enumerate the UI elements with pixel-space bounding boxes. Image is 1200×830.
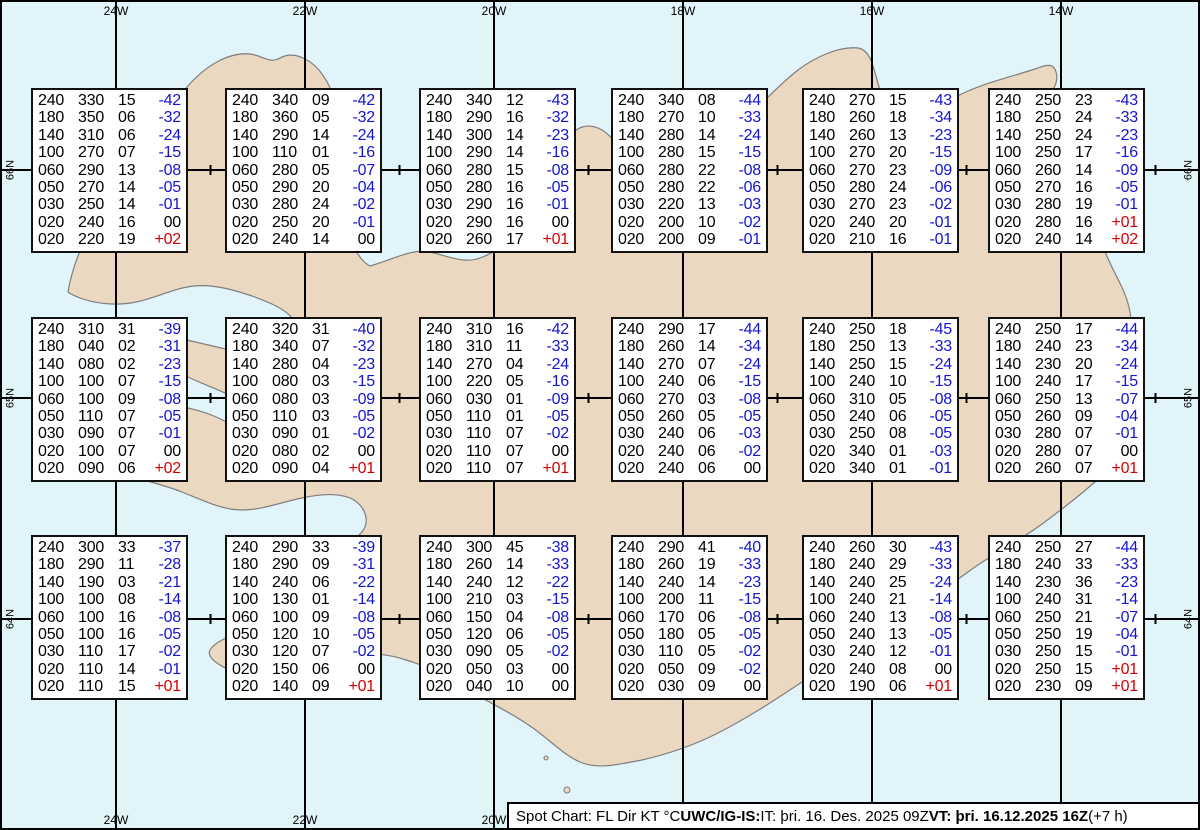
dir-cell: 100	[78, 443, 108, 460]
temp-cell: -08	[537, 609, 569, 626]
temp-cell: -08	[537, 162, 569, 179]
spot-row: 02011007+01	[426, 460, 569, 477]
fl-cell: 140	[426, 127, 456, 144]
temp-cell: +01	[537, 460, 569, 477]
dir-cell: 250	[1035, 109, 1065, 126]
fl-cell: 240	[38, 92, 68, 109]
fl-cell: 030	[426, 643, 456, 660]
fl-cell: 180	[232, 338, 262, 355]
speed-cell: 10	[506, 678, 527, 695]
fl-cell: 140	[618, 127, 648, 144]
speed-cell: 13	[698, 196, 719, 213]
speed-cell: 16	[118, 626, 139, 643]
dir-cell: 270	[1035, 179, 1065, 196]
temp-cell: 00	[537, 661, 569, 678]
spot-row: 24027015-43	[809, 92, 952, 109]
fl-cell: 240	[995, 92, 1025, 109]
fl-cell: 140	[809, 356, 839, 373]
dir-cell: 310	[849, 391, 879, 408]
speed-cell: 36	[1075, 574, 1096, 591]
lon-label-top-14W: 14W	[1049, 5, 1074, 17]
speed-cell: 06	[698, 609, 719, 626]
temp-cell: 00	[729, 678, 761, 695]
dir-cell: 300	[466, 539, 496, 556]
fl-cell: 180	[618, 109, 648, 126]
fl-cell: 240	[38, 539, 68, 556]
temp-cell: -23	[1106, 574, 1138, 591]
dir-cell: 210	[849, 231, 879, 248]
speed-cell: 07	[312, 338, 333, 355]
speed-cell: 14	[1075, 231, 1096, 248]
spot-row: 05011001-05	[426, 408, 569, 425]
speed-cell: 10	[889, 373, 910, 390]
fl-cell: 100	[809, 591, 839, 608]
temp-cell: -01	[1106, 196, 1138, 213]
spot-row: 10022005-16	[426, 373, 569, 390]
dir-cell: 030	[466, 391, 496, 408]
fl-cell: 020	[38, 460, 68, 477]
spot-row: 03009001-02	[232, 425, 375, 442]
speed-cell: 23	[1075, 92, 1096, 109]
temp-cell: -08	[729, 162, 761, 179]
dir-cell: 110	[466, 443, 496, 460]
spot-row: 10028015-15	[618, 144, 761, 161]
temp-cell: -15	[920, 373, 952, 390]
speed-cell: 14	[1075, 162, 1096, 179]
dir-cell: 330	[78, 92, 108, 109]
dir-cell: 250	[1035, 626, 1065, 643]
spot-row: 10020011-15	[618, 591, 761, 608]
dir-cell: 250	[1035, 92, 1065, 109]
dir-cell: 150	[272, 661, 302, 678]
spot-row: 18029009-31	[232, 556, 375, 573]
spot-row: 02025015+01	[995, 661, 1138, 678]
speed-cell: 15	[118, 678, 139, 695]
lon-label-top-22W: 22W	[293, 5, 318, 17]
fl-cell: 020	[618, 678, 648, 695]
spot-row: 03009005-02	[426, 643, 569, 660]
temp-cell: -15	[920, 144, 952, 161]
dir-cell: 340	[658, 92, 688, 109]
fl-cell: 240	[38, 321, 68, 338]
fl-cell: 020	[809, 661, 839, 678]
speed-cell: 02	[118, 338, 139, 355]
spot-row: 05010016-05	[38, 626, 181, 643]
spot-chart-map: 24W24W22W22W20W20W18W18W16W16W14W14W66N6…	[0, 0, 1200, 830]
speed-cell: 18	[889, 321, 910, 338]
spot-row: 02026017+01	[426, 231, 569, 248]
dir-cell: 290	[466, 214, 496, 231]
dir-cell: 270	[78, 144, 108, 161]
dir-cell: 290	[272, 179, 302, 196]
dir-cell: 290	[272, 127, 302, 144]
temp-cell: -14	[343, 591, 375, 608]
speed-cell: 09	[698, 231, 719, 248]
temp-cell: -02	[343, 196, 375, 213]
temp-cell: -42	[537, 321, 569, 338]
temp-cell: -32	[343, 109, 375, 126]
speed-cell: 06	[312, 574, 333, 591]
speed-cell: 01	[506, 408, 527, 425]
spot-row: 02024020-01	[809, 214, 952, 231]
fl-cell: 020	[618, 443, 648, 460]
speed-cell: 24	[1075, 127, 1096, 144]
temp-cell: -05	[729, 408, 761, 425]
dir-cell: 310	[78, 321, 108, 338]
dir-cell: 200	[658, 231, 688, 248]
dir-cell: 270	[849, 144, 879, 161]
temp-cell: -24	[537, 356, 569, 373]
fl-cell: 060	[38, 162, 68, 179]
spot-row: 02034001-03	[809, 443, 952, 460]
spot-row: 14027004-24	[426, 356, 569, 373]
dir-cell: 280	[1035, 196, 1065, 213]
speed-cell: 07	[506, 425, 527, 442]
speed-cell: 07	[506, 460, 527, 477]
dir-cell: 340	[849, 460, 879, 477]
spot-row: 02009004+01	[232, 460, 375, 477]
dir-cell: 100	[78, 626, 108, 643]
dir-cell: 100	[78, 391, 108, 408]
temp-cell: -31	[149, 338, 181, 355]
spot-row: 24031031-39	[38, 321, 181, 338]
dir-cell: 280	[272, 356, 302, 373]
dir-cell: 280	[466, 179, 496, 196]
spot-row: 10011001-16	[232, 144, 375, 161]
temp-cell: -22	[343, 574, 375, 591]
spot-row: 02026007+01	[995, 460, 1138, 477]
fl-cell: 030	[38, 425, 68, 442]
lon-label-top-20W: 20W	[482, 5, 507, 17]
lat-label-left-66N: 66N	[6, 160, 17, 180]
fl-cell: 020	[232, 460, 262, 477]
spot-box-12: 24025017-4418024023-3414023020-241002401…	[988, 317, 1145, 482]
fl-cell: 180	[38, 556, 68, 573]
fl-cell: 180	[426, 556, 456, 573]
temp-cell: -24	[343, 127, 375, 144]
temp-cell: +02	[149, 460, 181, 477]
spot-row: 03027023-02	[809, 196, 952, 213]
fl-cell: 050	[426, 408, 456, 425]
fl-cell: 100	[232, 591, 262, 608]
dir-cell: 240	[272, 574, 302, 591]
temp-cell: -14	[1106, 591, 1138, 608]
temp-cell: -23	[920, 127, 952, 144]
lon-label-top-24W: 24W	[104, 5, 129, 17]
speed-cell: 41	[698, 539, 719, 556]
temp-cell: 00	[343, 231, 375, 248]
fl-cell: 050	[995, 626, 1025, 643]
dir-cell: 210	[466, 591, 496, 608]
speed-cell: 14	[312, 127, 333, 144]
speed-cell: 08	[118, 591, 139, 608]
fl-cell: 140	[38, 574, 68, 591]
temp-cell: -16	[343, 144, 375, 161]
dir-cell: 350	[78, 109, 108, 126]
fl-cell: 060	[232, 391, 262, 408]
dir-cell: 340	[849, 443, 879, 460]
speed-cell: 19	[698, 556, 719, 573]
spot-box-5: 24027015-4318026018-3414026013-231002702…	[802, 88, 959, 253]
speed-cell: 11	[506, 338, 527, 355]
dir-cell: 050	[658, 661, 688, 678]
speed-cell: 01	[889, 460, 910, 477]
lon-label-bottom-20W: 20W	[482, 814, 507, 826]
spot-row: 0202400800	[809, 661, 952, 678]
fl-cell: 050	[809, 626, 839, 643]
fl-cell: 180	[995, 109, 1025, 126]
speed-cell: 20	[312, 214, 333, 231]
fl-cell: 020	[995, 443, 1025, 460]
fl-cell: 180	[995, 338, 1025, 355]
temp-cell: -43	[537, 92, 569, 109]
dir-cell: 300	[466, 127, 496, 144]
spot-row: 06027023-09	[809, 162, 952, 179]
speed-cell: 05	[312, 162, 333, 179]
temp-cell: 00	[537, 678, 569, 695]
temp-cell: -03	[729, 196, 761, 213]
speed-cell: 14	[698, 338, 719, 355]
temp-cell: +01	[537, 231, 569, 248]
temp-cell: -01	[920, 643, 952, 660]
speed-cell: 19	[1075, 626, 1096, 643]
dir-cell: 340	[466, 92, 496, 109]
speed-cell: 20	[889, 214, 910, 231]
spot-row: 14026013-23	[809, 127, 952, 144]
spot-row: 02024006-02	[618, 443, 761, 460]
dir-cell: 260	[1035, 162, 1065, 179]
speed-cell: 08	[698, 92, 719, 109]
fl-cell: 060	[809, 391, 839, 408]
dir-cell: 260	[849, 109, 879, 126]
fl-cell: 020	[426, 231, 456, 248]
speed-cell: 06	[118, 109, 139, 126]
dir-cell: 290	[272, 556, 302, 573]
fl-cell: 240	[426, 92, 456, 109]
dir-cell: 030	[658, 678, 688, 695]
speed-cell: 09	[698, 678, 719, 695]
dir-cell: 240	[658, 460, 688, 477]
spot-row: 02005009-02	[618, 661, 761, 678]
dir-cell: 110	[466, 425, 496, 442]
fl-cell: 020	[809, 678, 839, 695]
spot-row: 02028016+01	[995, 214, 1138, 231]
fl-cell: 180	[232, 556, 262, 573]
spot-row: 18024029-33	[809, 556, 952, 573]
dir-cell: 240	[1035, 231, 1065, 248]
fl-cell: 020	[618, 214, 648, 231]
spot-box-2: 24034009-4218036005-3214029014-241001100…	[225, 88, 382, 253]
spot-row: 18036005-32	[232, 109, 375, 126]
fl-cell: 100	[618, 373, 648, 390]
temp-cell: -08	[149, 609, 181, 626]
dir-cell: 240	[849, 556, 879, 573]
speed-cell: 14	[506, 144, 527, 161]
temp-cell: +01	[1106, 678, 1138, 695]
speed-cell: 11	[118, 556, 139, 573]
fl-cell: 060	[426, 162, 456, 179]
fl-cell: 180	[809, 556, 839, 573]
speed-cell: 23	[889, 196, 910, 213]
dir-cell: 120	[272, 643, 302, 660]
dir-cell: 260	[849, 539, 879, 556]
fl-cell: 020	[426, 443, 456, 460]
dir-cell: 110	[466, 408, 496, 425]
spot-row: 03024012-01	[809, 643, 952, 660]
temp-cell: -01	[920, 231, 952, 248]
spot-row: 05011003-05	[232, 408, 375, 425]
dir-cell: 230	[1035, 356, 1065, 373]
fl-cell: 100	[618, 591, 648, 608]
fl-cell: 050	[809, 179, 839, 196]
fl-cell: 140	[38, 127, 68, 144]
fl-cell: 020	[995, 678, 1025, 695]
fl-cell: 030	[232, 643, 262, 660]
dir-cell: 270	[849, 162, 879, 179]
fl-cell: 140	[618, 574, 648, 591]
footer-segment-bold: VT: þri. 16.12.2025 16Z	[929, 808, 1088, 825]
dir-cell: 240	[658, 574, 688, 591]
spot-row: 24030033-37	[38, 539, 181, 556]
temp-cell: 00	[343, 443, 375, 460]
footer-segment: Spot Chart: FL Dir KT °C	[516, 808, 680, 825]
temp-cell: 00	[537, 214, 569, 231]
dir-cell: 110	[78, 678, 108, 695]
fl-cell: 240	[426, 321, 456, 338]
dir-cell: 260	[1035, 408, 1065, 425]
dir-cell: 260	[466, 556, 496, 573]
speed-cell: 08	[889, 425, 910, 442]
spot-row: 10024021-14	[809, 591, 952, 608]
dir-cell: 110	[78, 643, 108, 660]
spot-row: 18025024-33	[995, 109, 1138, 126]
speed-cell: 31	[1075, 591, 1096, 608]
spot-row: 02014009+01	[232, 678, 375, 695]
fl-cell: 180	[618, 556, 648, 573]
temp-cell: -08	[729, 391, 761, 408]
fl-cell: 050	[995, 179, 1025, 196]
temp-cell: -05	[920, 425, 952, 442]
dir-cell: 260	[466, 231, 496, 248]
temp-cell: 00	[729, 460, 761, 477]
temp-cell: -42	[343, 92, 375, 109]
temp-cell: -03	[729, 425, 761, 442]
temp-cell: -33	[537, 556, 569, 573]
temp-cell: -01	[1106, 425, 1138, 442]
fl-cell: 140	[995, 574, 1025, 591]
speed-cell: 06	[698, 460, 719, 477]
fl-cell: 100	[995, 144, 1025, 161]
speed-cell: 45	[506, 539, 527, 556]
fl-cell: 030	[426, 196, 456, 213]
dir-cell: 100	[78, 591, 108, 608]
island-speck	[544, 756, 548, 760]
temp-cell: -09	[1106, 162, 1138, 179]
dir-cell: 240	[849, 408, 879, 425]
dir-cell: 270	[658, 109, 688, 126]
fl-cell: 030	[995, 425, 1025, 442]
temp-cell: -01	[920, 460, 952, 477]
fl-cell: 100	[995, 373, 1025, 390]
fl-cell: 020	[809, 443, 839, 460]
dir-cell: 290	[466, 109, 496, 126]
temp-cell: -23	[729, 574, 761, 591]
speed-cell: 09	[118, 391, 139, 408]
fl-cell: 180	[232, 109, 262, 126]
dir-cell: 240	[849, 661, 879, 678]
spot-row: 06010009-08	[38, 391, 181, 408]
speed-cell: 06	[118, 127, 139, 144]
dir-cell: 130	[272, 591, 302, 608]
dir-cell: 040	[78, 338, 108, 355]
temp-cell: -44	[729, 321, 761, 338]
temp-cell: -04	[1106, 626, 1138, 643]
temp-cell: -07	[343, 162, 375, 179]
temp-cell: -31	[343, 556, 375, 573]
dir-cell: 240	[1035, 556, 1065, 573]
fl-cell: 100	[38, 591, 68, 608]
dir-cell: 240	[658, 373, 688, 390]
fl-cell: 020	[38, 678, 68, 695]
temp-cell: -02	[729, 643, 761, 660]
temp-cell: -33	[1106, 109, 1138, 126]
spot-box-11: 24025018-4518025013-3314025015-241002401…	[802, 317, 959, 482]
speed-cell: 07	[1075, 460, 1096, 477]
lat-label-left-64N: 64N	[6, 609, 17, 629]
spot-row: 03022013-03	[618, 196, 761, 213]
temp-cell: +01	[343, 678, 375, 695]
temp-cell: -15	[537, 591, 569, 608]
dir-cell: 280	[658, 144, 688, 161]
spot-row: 06024013-08	[809, 609, 952, 626]
temp-cell: +01	[920, 678, 952, 695]
fl-cell: 020	[995, 460, 1025, 477]
dir-cell: 240	[849, 574, 879, 591]
dir-cell: 240	[78, 214, 108, 231]
speed-cell: 09	[312, 678, 333, 695]
spot-row: 02024014+02	[995, 231, 1138, 248]
dir-cell: 190	[849, 678, 879, 695]
fl-cell: 100	[426, 591, 456, 608]
fl-cell: 050	[618, 408, 648, 425]
dir-cell: 250	[1035, 144, 1065, 161]
spot-row: 03012007-02	[232, 643, 375, 660]
temp-cell: -37	[149, 539, 181, 556]
speed-cell: 01	[312, 144, 333, 161]
fl-cell: 050	[38, 626, 68, 643]
dir-cell: 140	[272, 678, 302, 695]
fl-cell: 140	[232, 574, 262, 591]
spot-row: 05028022-06	[618, 179, 761, 196]
spot-box-17: 24026030-4318024029-3314024025-241002402…	[802, 535, 959, 700]
spot-row: 0201000700	[38, 443, 181, 460]
temp-cell: -33	[1106, 556, 1138, 573]
speed-cell: 14	[118, 196, 139, 213]
fl-cell: 100	[426, 373, 456, 390]
speed-cell: 33	[312, 539, 333, 556]
fl-cell: 020	[809, 214, 839, 231]
fl-cell: 030	[618, 643, 648, 660]
spot-row: 14024006-22	[232, 574, 375, 591]
spot-row: 03028019-01	[995, 196, 1138, 213]
spot-row: 02022019+02	[38, 231, 181, 248]
speed-cell: 20	[1075, 356, 1096, 373]
temp-cell: -38	[537, 539, 569, 556]
dir-cell: 090	[272, 460, 302, 477]
fl-cell: 020	[995, 214, 1025, 231]
fl-cell: 020	[232, 678, 262, 695]
dir-cell: 100	[78, 609, 108, 626]
